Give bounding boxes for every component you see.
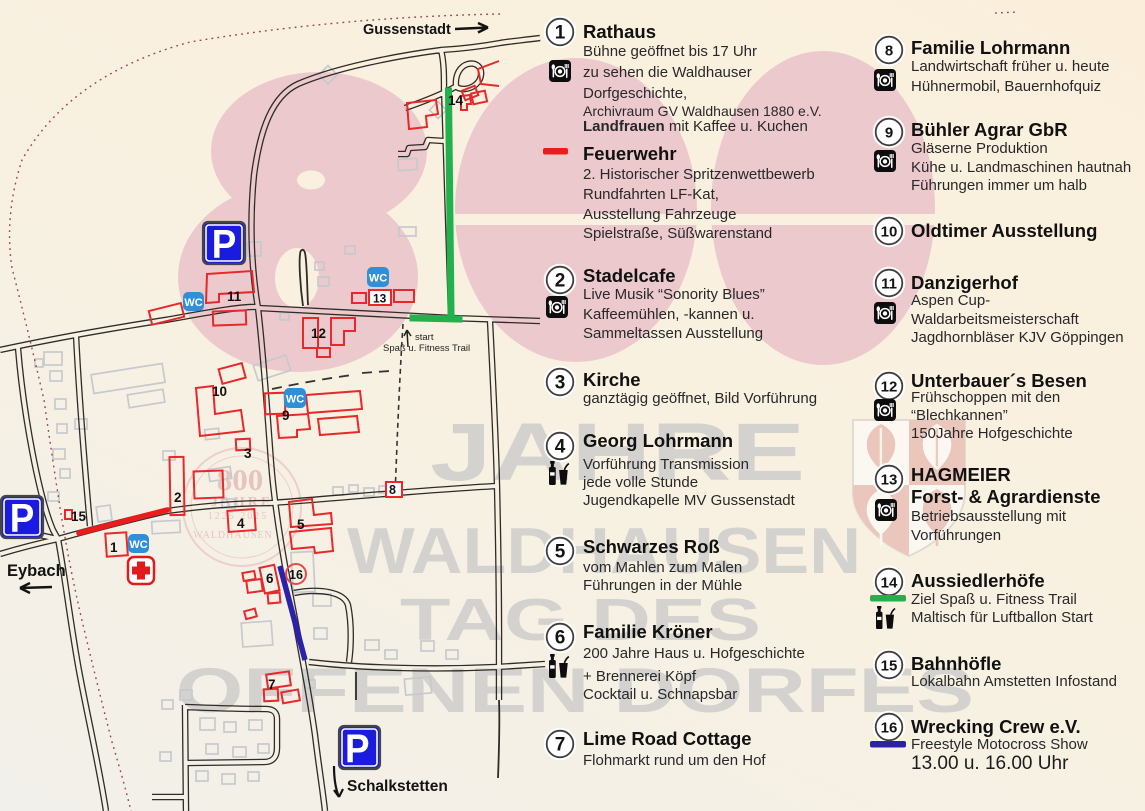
svg-text:5: 5 xyxy=(555,542,566,563)
svg-text:Gussenstadt: Gussenstadt xyxy=(363,22,451,38)
svg-text:12: 12 xyxy=(311,326,326,341)
svg-text:4: 4 xyxy=(237,516,245,531)
svg-text:8: 8 xyxy=(885,43,893,60)
svg-text:Eybach: Eybach xyxy=(7,562,66,580)
svg-text:3: 3 xyxy=(244,446,252,461)
svg-text:4: 4 xyxy=(555,437,566,458)
svg-text:6: 6 xyxy=(555,628,566,649)
svg-text:16: 16 xyxy=(881,720,898,737)
svg-text:5: 5 xyxy=(297,517,305,532)
svg-text:11: 11 xyxy=(881,276,897,293)
svg-text:WC: WC xyxy=(369,273,387,285)
svg-text:WC: WC xyxy=(129,539,147,551)
svg-text:P: P xyxy=(10,496,35,541)
svg-text:2: 2 xyxy=(174,490,182,505)
svg-text:1: 1 xyxy=(555,23,566,44)
svg-text:start: start xyxy=(415,332,434,343)
svg-text:WC: WC xyxy=(286,394,304,406)
svg-text:9: 9 xyxy=(282,408,290,423)
svg-text:P: P xyxy=(212,222,237,267)
svg-text:10: 10 xyxy=(881,224,898,241)
svg-text:2: 2 xyxy=(555,271,566,292)
svg-text:10: 10 xyxy=(212,384,227,399)
svg-text:Spaß u. Fitness Trail: Spaß u. Fitness Trail xyxy=(383,343,470,354)
svg-text:15: 15 xyxy=(881,658,898,675)
svg-text:7: 7 xyxy=(268,677,276,692)
svg-text:3: 3 xyxy=(555,373,566,394)
svg-text:TAG DES: TAG DES xyxy=(400,587,761,653)
svg-text:16: 16 xyxy=(289,568,303,582)
svg-text:9: 9 xyxy=(885,125,893,142)
svg-text:11: 11 xyxy=(227,289,242,304)
svg-text:8: 8 xyxy=(389,483,396,497)
svg-text:7: 7 xyxy=(555,735,566,756)
svg-text:12: 12 xyxy=(881,379,898,396)
svg-text:1: 1 xyxy=(110,540,118,555)
svg-text:14: 14 xyxy=(881,575,898,592)
svg-text:OFFENEN DORFES: OFFENEN DORFES xyxy=(176,656,974,726)
svg-text:13: 13 xyxy=(881,472,898,489)
svg-text:P: P xyxy=(345,727,370,772)
svg-text:13: 13 xyxy=(373,292,387,306)
svg-text:Schalkstetten: Schalkstetten xyxy=(347,778,448,795)
svg-text:14: 14 xyxy=(448,93,464,108)
svg-text:15: 15 xyxy=(71,509,87,524)
svg-text:6: 6 xyxy=(266,571,274,586)
svg-text:WC: WC xyxy=(184,297,202,309)
